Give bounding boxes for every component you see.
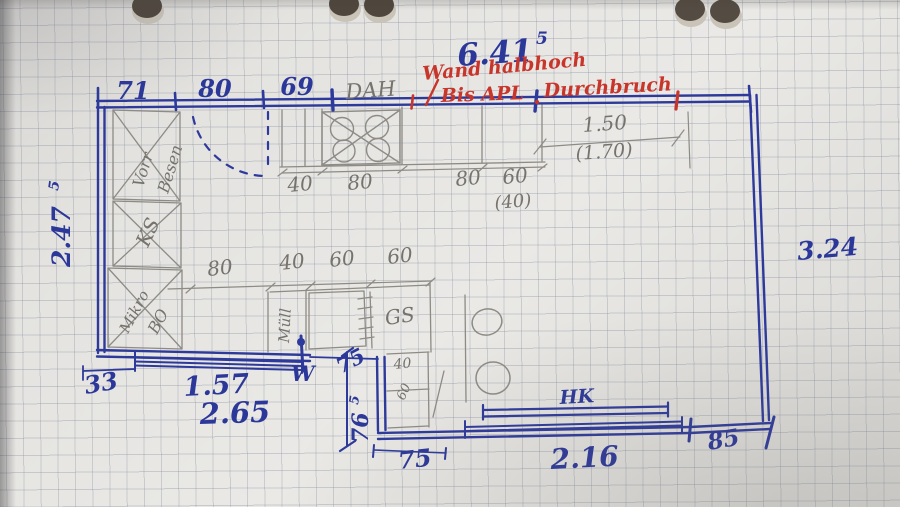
floor-plan-sketch: 6.41 5 71 80 69 2.47 5 3.24 33 1.57 W 2.…: [0, 0, 900, 507]
photo-vignette: [0, 0, 900, 507]
